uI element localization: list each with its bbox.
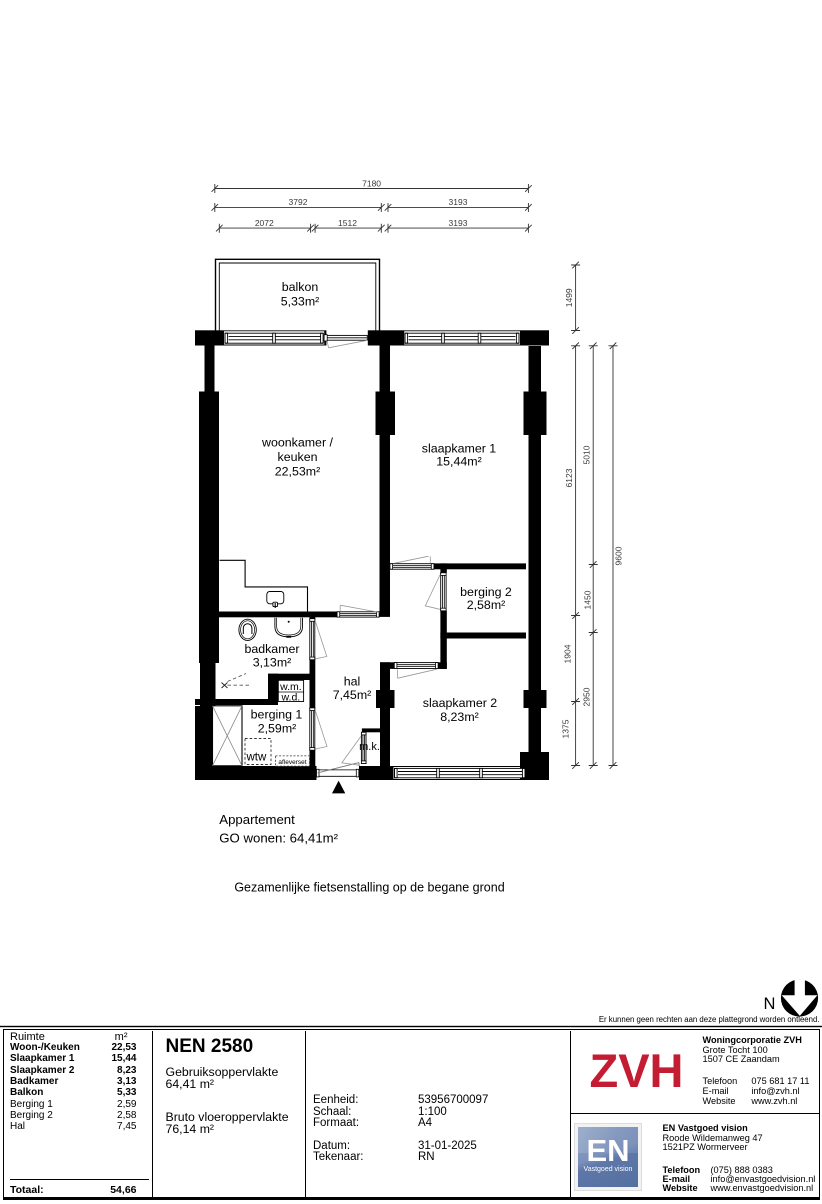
- svg-text:Appartement: Appartement: [219, 812, 295, 827]
- svg-text:1512: 1512: [338, 218, 357, 228]
- svg-text:5,33m²: 5,33m²: [281, 295, 320, 309]
- svg-text:badkamer: badkamer: [244, 642, 299, 656]
- svg-text:3193: 3193: [449, 197, 468, 207]
- svg-text:1375: 1375: [561, 719, 571, 738]
- svg-text:7,45m²: 7,45m²: [333, 688, 372, 702]
- svg-text:w.d.: w.d.: [281, 691, 301, 703]
- svg-text:3193: 3193: [449, 218, 468, 228]
- svg-text:2950: 2950: [582, 687, 592, 706]
- svg-text:N: N: [764, 995, 776, 1013]
- svg-text:GO wonen: 64,41m²: GO wonen: 64,41m²: [219, 831, 338, 846]
- svg-text:slaapkamer 1: slaapkamer 1: [422, 441, 496, 455]
- svg-text:6123: 6123: [564, 468, 574, 487]
- svg-text:berging 1: berging 1: [251, 707, 303, 721]
- svg-text:22,53m²: 22,53m²: [275, 465, 320, 479]
- svg-text:berging 2: berging 2: [460, 585, 512, 599]
- svg-text:3792: 3792: [289, 197, 308, 207]
- svg-text:7180: 7180: [362, 178, 381, 188]
- svg-text:wtw: wtw: [246, 752, 268, 764]
- svg-text:2072: 2072: [255, 218, 274, 228]
- svg-text:5010: 5010: [582, 445, 592, 464]
- svg-text:woonkamer /: woonkamer /: [261, 435, 333, 449]
- svg-text:2,59m²: 2,59m²: [258, 721, 297, 735]
- svg-text:Gezamenlijke fietsenstalling o: Gezamenlijke fietsenstalling op de began…: [234, 881, 504, 895]
- svg-text:8,23m²: 8,23m²: [440, 710, 479, 724]
- svg-text:Er kunnen geen rechten aan dez: Er kunnen geen rechten aan deze plattegr…: [599, 1015, 820, 1024]
- svg-text:hal: hal: [344, 675, 361, 689]
- svg-text:2,58m²: 2,58m²: [467, 598, 506, 612]
- svg-text:afleverset: afleverset: [278, 759, 306, 766]
- svg-text:3,13m²: 3,13m²: [253, 656, 292, 670]
- svg-text:balkon: balkon: [282, 280, 319, 294]
- svg-text:slaapkamer 2: slaapkamer 2: [423, 696, 497, 710]
- svg-text:1904: 1904: [563, 644, 573, 663]
- svg-text:15,44m²: 15,44m²: [436, 455, 481, 469]
- svg-text:1450: 1450: [583, 590, 593, 609]
- svg-text:9600: 9600: [614, 546, 624, 565]
- svg-text:m.k.: m.k.: [359, 741, 380, 753]
- svg-text:keuken: keuken: [278, 450, 318, 464]
- svg-text:1499: 1499: [564, 288, 574, 307]
